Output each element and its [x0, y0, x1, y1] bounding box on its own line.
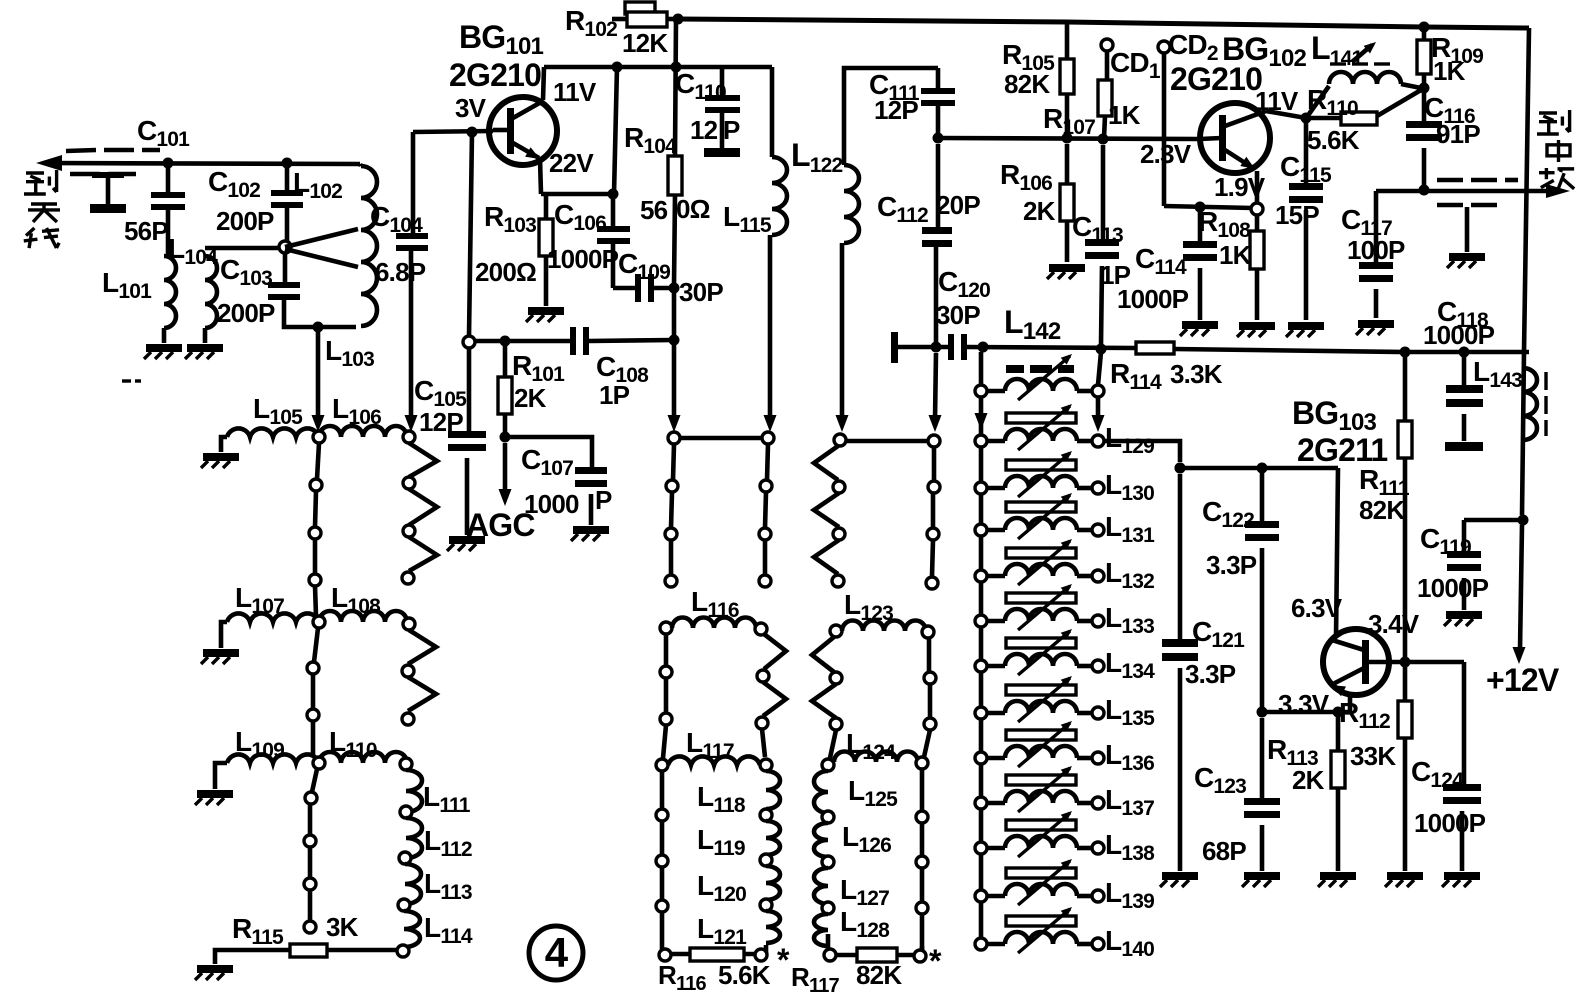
svg-text:P: P [723, 115, 740, 145]
svg-text:*: * [777, 942, 790, 978]
svg-text:68P: 68P [1202, 836, 1246, 866]
svg-text:200P: 200P [216, 206, 274, 236]
svg-text:5.6K: 5.6K [1307, 125, 1360, 155]
svg-text:*: * [929, 943, 942, 979]
svg-text:1P: 1P [1100, 260, 1131, 290]
svg-text:1000P: 1000P [1417, 573, 1489, 603]
svg-text:3.3K: 3.3K [1170, 359, 1223, 389]
svg-text:11V: 11V [553, 77, 597, 107]
svg-text:2.3V: 2.3V [1140, 139, 1192, 169]
svg-text:82K: 82K [856, 960, 902, 990]
svg-text:2G210: 2G210 [449, 57, 541, 93]
svg-text:100P: 100P [1347, 235, 1405, 265]
svg-text:2G210: 2G210 [1170, 61, 1262, 97]
svg-text:6.8P: 6.8P [375, 257, 426, 287]
svg-text:12K: 12K [622, 28, 668, 58]
svg-text:3.3V: 3.3V [1278, 689, 1330, 719]
svg-text:1K: 1K [1108, 100, 1141, 130]
svg-text:91P: 91P [1436, 119, 1480, 149]
svg-text:0Ω: 0Ω [676, 194, 710, 224]
svg-text:2K: 2K [514, 383, 547, 413]
svg-text:+12V: +12V [1486, 662, 1560, 698]
svg-text:5.6K: 5.6K [718, 960, 771, 990]
svg-text:3.3P: 3.3P [1206, 550, 1257, 580]
svg-text:12: 12 [690, 115, 718, 145]
svg-text:15P: 15P [1275, 200, 1319, 230]
svg-text:1000P: 1000P [547, 244, 619, 274]
svg-text:1000P: 1000P [1423, 320, 1495, 350]
svg-text:1K: 1K [1433, 56, 1466, 86]
svg-text:3K: 3K [326, 912, 359, 942]
svg-text:56: 56 [640, 195, 668, 225]
svg-text:33K: 33K [1350, 741, 1396, 771]
svg-text:2K: 2K [1023, 196, 1056, 226]
svg-text:3.3P: 3.3P [1185, 659, 1236, 689]
svg-text:6.3V: 6.3V [1291, 593, 1343, 623]
svg-text:200Ω: 200Ω [475, 257, 536, 287]
svg-text:1K: 1K [1219, 240, 1252, 270]
svg-text:30P: 30P [936, 300, 980, 330]
svg-text:1P: 1P [599, 380, 630, 410]
svg-text:2K: 2K [1292, 765, 1325, 795]
svg-text:AGC: AGC [466, 507, 535, 543]
svg-text:1000P: 1000P [1414, 808, 1486, 838]
svg-text:56P: 56P [124, 216, 168, 246]
svg-text:20P: 20P [936, 190, 980, 220]
svg-text:12P: 12P [874, 95, 918, 125]
svg-text:4: 4 [545, 929, 569, 976]
svg-text:22V: 22V [549, 148, 594, 178]
svg-text:200P: 200P [217, 298, 275, 328]
svg-text:30P: 30P [679, 277, 723, 307]
svg-text:3V: 3V [455, 93, 487, 123]
svg-text:3.4V: 3.4V [1368, 609, 1420, 639]
svg-text:82K: 82K [1359, 495, 1405, 525]
svg-text:12P: 12P [419, 407, 463, 437]
svg-text:2G211: 2G211 [1297, 432, 1387, 468]
svg-text:P: P [595, 485, 612, 515]
svg-text:82K: 82K [1004, 69, 1050, 99]
